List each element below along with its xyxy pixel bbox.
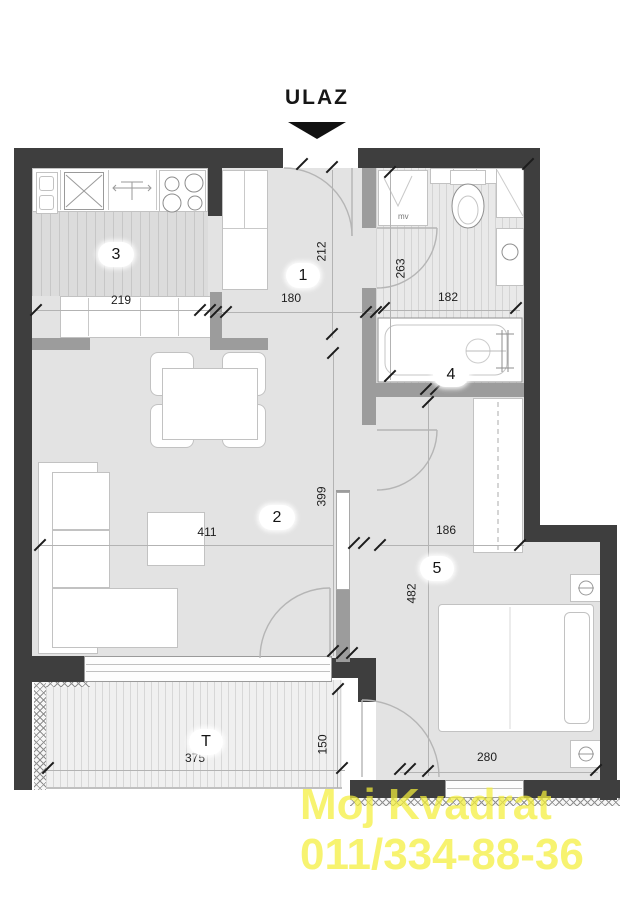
dim-living-depth: 399 bbox=[316, 475, 329, 519]
dim-line bbox=[38, 545, 333, 546]
dim-line bbox=[390, 170, 391, 380]
dim-kitchen-width: 219 bbox=[99, 294, 143, 307]
dim-line bbox=[380, 310, 520, 311]
dim-bathroom-width: 182 bbox=[426, 291, 470, 304]
room-label-terrace: T bbox=[189, 729, 223, 755]
burner bbox=[165, 177, 179, 191]
balcony-door-arc bbox=[260, 588, 330, 658]
dim-bathroom-depth: 263 bbox=[395, 247, 408, 291]
entrance-label: ULAZ bbox=[247, 86, 387, 110]
dim-line bbox=[400, 772, 598, 773]
burner bbox=[163, 194, 181, 212]
dim-bedroom-depth: 482 bbox=[406, 572, 419, 616]
dim-line bbox=[332, 170, 333, 338]
room-label-hall: 1 bbox=[286, 263, 320, 288]
washing-machine-detail bbox=[384, 176, 412, 206]
dim-hall-width: 180 bbox=[269, 292, 313, 305]
watermark-phone: 011/334-88-36 bbox=[300, 830, 584, 880]
room-label-kitchen: 3 bbox=[98, 242, 134, 267]
dim-line bbox=[378, 545, 524, 546]
dim-line bbox=[428, 400, 429, 776]
floor-plan: mv bbox=[0, 0, 634, 900]
vanity-basin bbox=[502, 244, 518, 260]
entrance-door-arc bbox=[284, 168, 352, 236]
watermark: Moj Kvadrat 011/334-88-36 bbox=[300, 780, 584, 880]
dim-line bbox=[46, 770, 345, 771]
dim-hall-depth: 212 bbox=[316, 230, 329, 274]
dim-line bbox=[36, 310, 208, 311]
room-label-bedroom: 5 bbox=[420, 556, 454, 581]
dim-living-width: 411 bbox=[185, 526, 229, 539]
toilet-bowl bbox=[452, 184, 484, 228]
burner bbox=[185, 174, 203, 192]
room-label-bathroom: 4 bbox=[433, 362, 469, 387]
dim-line bbox=[215, 312, 372, 313]
dim-terrace-depth: 150 bbox=[317, 723, 330, 767]
room-label-living: 2 bbox=[259, 505, 295, 530]
burner bbox=[188, 196, 202, 210]
cabinet-diagonal bbox=[497, 170, 523, 216]
dim-bedroom-width: 280 bbox=[465, 751, 509, 764]
dim-line bbox=[333, 352, 334, 656]
watermark-name: Moj Kvadrat bbox=[300, 780, 584, 830]
entrance-arrow-icon bbox=[288, 122, 346, 139]
dim-bedroom-width-upper: 186 bbox=[424, 524, 468, 537]
